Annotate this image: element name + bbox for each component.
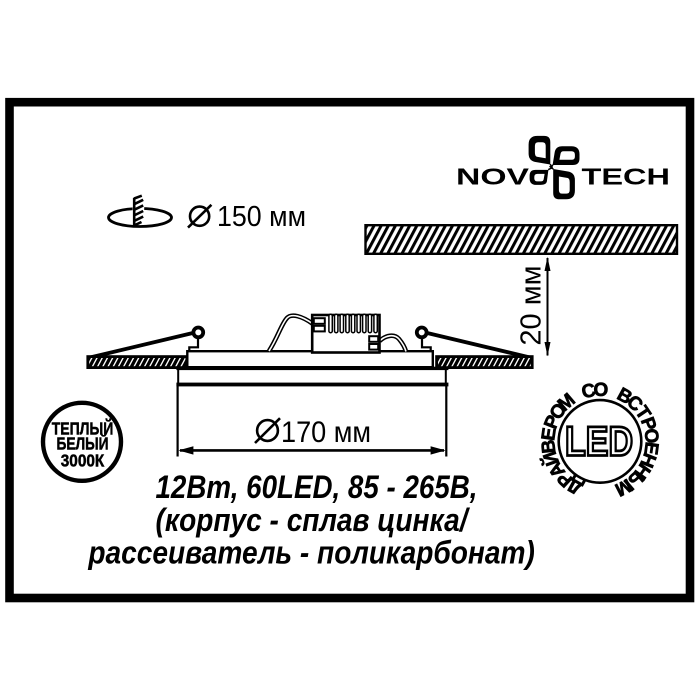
svg-text:12Вт, 60LED, 85 - 265В,: 12Вт, 60LED, 85 - 265В, [156, 469, 478, 505]
svg-text:20 мм: 20 мм [516, 265, 548, 345]
svg-text:LED: LED [565, 418, 633, 465]
svg-text:150 мм: 150 мм [217, 201, 306, 233]
svg-text:NOV: NOV [456, 163, 530, 189]
svg-text:О: О [593, 380, 608, 401]
svg-text:3000К: 3000К [61, 450, 105, 470]
svg-text:TECH: TECH [582, 163, 671, 189]
svg-text:170 мм: 170 мм [281, 416, 371, 449]
svg-text:(корпус - сплав цинка/: (корпус - сплав цинка/ [156, 502, 471, 538]
svg-text:рассеиватель - поликарбонат): рассеиватель - поликарбонат) [87, 535, 534, 571]
